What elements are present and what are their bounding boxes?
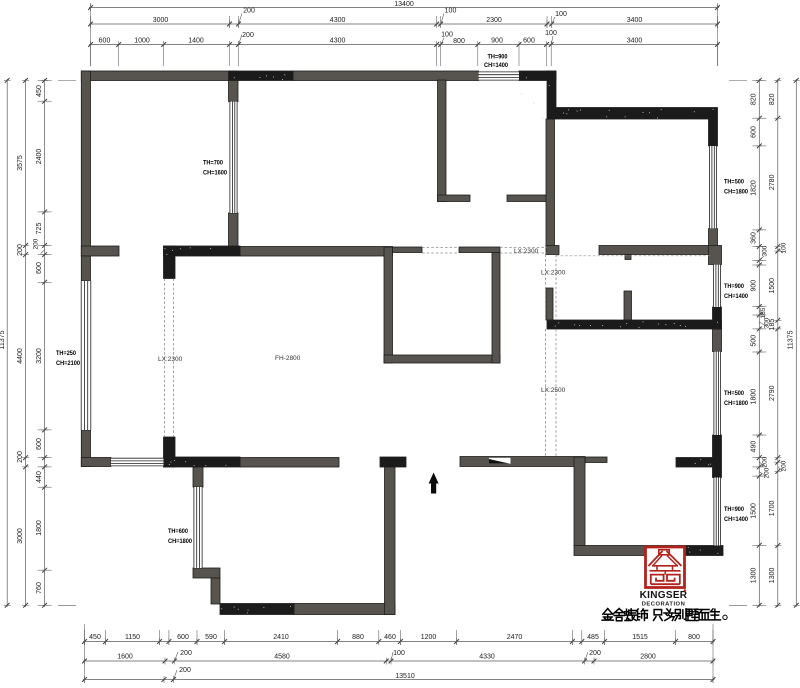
svg-text:600: 600: [99, 38, 111, 45]
svg-text:600: 600: [523, 38, 535, 45]
svg-text:1300: 1300: [769, 568, 776, 584]
svg-text:600: 600: [750, 126, 757, 138]
svg-text:13400: 13400: [394, 1, 414, 8]
svg-text:590: 590: [205, 634, 217, 641]
svg-text:900: 900: [750, 280, 757, 292]
svg-text:FH-2800: FH-2800: [275, 355, 301, 362]
svg-text:LX:2300: LX:2300: [158, 356, 183, 363]
svg-text:1300: 1300: [750, 568, 757, 584]
svg-text:2300: 2300: [486, 17, 502, 24]
svg-text:LX:2500: LX:2500: [541, 387, 566, 394]
svg-text:TH=900: TH=900: [488, 55, 509, 61]
svg-text:CH=1800: CH=1800: [168, 539, 193, 545]
svg-text:CH=1400: CH=1400: [724, 517, 749, 523]
svg-text:TH=500: TH=500: [724, 180, 745, 186]
svg-text:200: 200: [17, 244, 24, 256]
svg-text:CH=1600: CH=1600: [203, 171, 228, 177]
svg-text:1800: 1800: [750, 389, 757, 405]
svg-text:TH=250: TH=250: [56, 351, 77, 357]
svg-text:4580: 4580: [274, 654, 290, 661]
svg-text:200: 200: [180, 650, 192, 657]
svg-text:1400: 1400: [188, 38, 204, 45]
svg-text:760: 760: [36, 582, 43, 594]
svg-text:1600: 1600: [117, 654, 133, 661]
svg-text:2790: 2790: [769, 385, 776, 401]
svg-text:TH=900: TH=900: [724, 507, 745, 513]
svg-text:2780: 2780: [769, 174, 776, 190]
svg-text:185: 185: [769, 319, 776, 331]
svg-text:LX:2300: LX:2300: [514, 248, 539, 255]
svg-text:450: 450: [89, 634, 101, 641]
svg-text:1500: 1500: [750, 503, 757, 519]
svg-text:1700: 1700: [769, 501, 776, 517]
svg-text:1000: 1000: [134, 38, 150, 45]
svg-text:490: 490: [750, 441, 757, 453]
svg-text:100: 100: [781, 242, 788, 253]
svg-text:200: 200: [762, 456, 769, 467]
svg-text:CH=1800: CH=1800: [724, 190, 749, 196]
svg-text:600: 600: [36, 438, 43, 450]
svg-text:2410: 2410: [273, 634, 289, 641]
svg-text:900: 900: [491, 38, 503, 45]
svg-text:KINGSER: KINGSER: [640, 590, 688, 601]
svg-text:4400: 4400: [17, 348, 24, 364]
svg-text:800: 800: [453, 38, 465, 45]
svg-text:100: 100: [393, 650, 405, 657]
svg-text:200: 200: [243, 8, 255, 15]
svg-text:300: 300: [762, 245, 769, 256]
svg-text:11375: 11375: [0, 330, 6, 349]
svg-text:100: 100: [445, 8, 457, 15]
svg-text:200: 200: [781, 460, 788, 471]
svg-text:CH=1400: CH=1400: [724, 294, 749, 300]
svg-text:485: 485: [587, 634, 599, 641]
svg-text:DECORATION: DECORATION: [642, 602, 686, 608]
svg-text:450: 450: [36, 85, 43, 97]
svg-text:LX:2300: LX:2300: [541, 270, 566, 277]
svg-text:800: 800: [688, 634, 700, 641]
svg-text:4300: 4300: [330, 38, 346, 45]
svg-text:880: 880: [352, 634, 364, 641]
svg-text:1800: 1800: [36, 520, 43, 536]
svg-text:360: 360: [750, 232, 757, 244]
svg-text:820: 820: [750, 93, 757, 105]
svg-text:1500: 1500: [769, 278, 776, 294]
svg-text:1515: 1515: [632, 634, 648, 641]
svg-text:4330: 4330: [479, 654, 495, 661]
svg-text:100: 100: [555, 11, 567, 18]
svg-text:13510: 13510: [395, 673, 415, 680]
svg-text:TH=500: TH=500: [724, 391, 745, 397]
svg-text:440: 440: [36, 471, 43, 483]
svg-text:3400: 3400: [627, 17, 643, 24]
svg-text:CH=2100: CH=2100: [56, 361, 81, 367]
svg-text:1150: 1150: [125, 634, 140, 641]
svg-text:600: 600: [177, 634, 189, 641]
svg-text:1820: 1820: [750, 180, 757, 196]
svg-text:TH=900: TH=900: [724, 284, 745, 290]
svg-text:725: 725: [36, 223, 43, 235]
svg-text:2800: 2800: [640, 654, 656, 661]
svg-text:3575: 3575: [17, 155, 24, 171]
svg-text:CH=1800: CH=1800: [724, 401, 749, 407]
svg-text:100: 100: [441, 32, 453, 39]
svg-text:200: 200: [33, 238, 40, 249]
svg-text:100: 100: [545, 30, 557, 37]
svg-text:11375: 11375: [788, 330, 795, 349]
svg-text:500: 500: [750, 335, 757, 347]
svg-text:1200: 1200: [421, 634, 437, 641]
svg-text:200: 200: [17, 451, 24, 463]
svg-text:600: 600: [36, 262, 43, 274]
svg-text:TH=600: TH=600: [168, 529, 189, 535]
svg-text:820: 820: [769, 93, 776, 105]
svg-text:200: 200: [242, 32, 254, 39]
svg-text:200: 200: [764, 467, 771, 478]
svg-text:3200: 3200: [36, 348, 43, 364]
svg-text:200: 200: [589, 650, 601, 657]
svg-text:4300: 4300: [330, 17, 346, 24]
svg-text:200: 200: [179, 667, 191, 674]
svg-text:460: 460: [384, 634, 396, 641]
svg-text:TH=700: TH=700: [203, 161, 224, 167]
svg-text:2470: 2470: [507, 634, 523, 641]
svg-text:3000: 3000: [17, 528, 24, 544]
svg-text:CH=1400: CH=1400: [484, 63, 509, 69]
svg-text:3400: 3400: [627, 38, 643, 45]
svg-text:185: 185: [760, 307, 767, 318]
svg-text:3000: 3000: [153, 17, 169, 24]
svg-text:2400: 2400: [36, 149, 43, 165]
